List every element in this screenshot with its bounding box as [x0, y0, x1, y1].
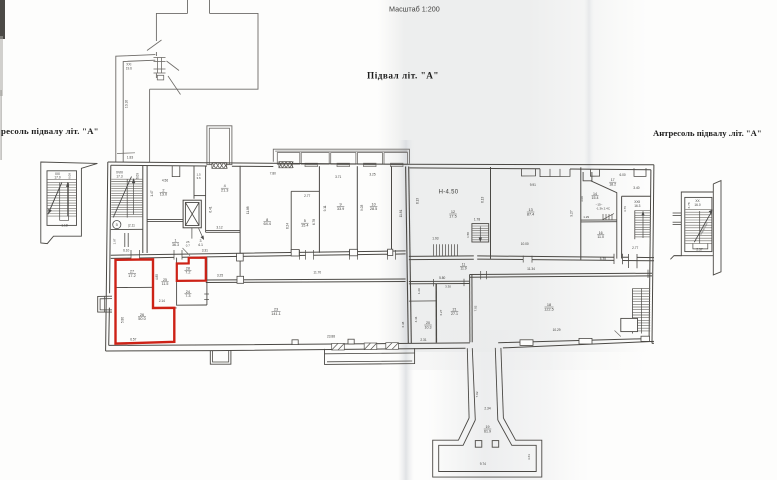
svg-text:7.2: 7.2 [185, 271, 190, 275]
svg-text:4.44: 4.44 [414, 316, 418, 322]
svg-text:5.80: 5.80 [439, 276, 445, 280]
svg-text:11.34: 11.34 [527, 267, 535, 271]
svg-text:15.4: 15.4 [592, 196, 599, 200]
svg-text:2.34: 2.34 [484, 407, 490, 411]
svg-text:-1.3h 2.4С: -1.3h 2.4С [596, 207, 611, 211]
svg-text:6.09: 6.09 [67, 173, 71, 179]
svg-text:5.80: 5.80 [120, 317, 124, 323]
svg-text:3.40: 3.40 [633, 186, 639, 190]
svg-text:1.93: 1.93 [432, 237, 438, 241]
svg-text:1.47: 1.47 [150, 190, 154, 196]
svg-text:6.78: 6.78 [687, 202, 691, 208]
svg-text:27.1: 27.1 [451, 312, 458, 316]
svg-text:1.78: 1.78 [474, 218, 480, 222]
svg-text:33.9: 33.9 [337, 207, 344, 211]
svg-text:7.02: 7.02 [474, 305, 478, 311]
svg-text:2.37: 2.37 [696, 247, 702, 251]
svg-text:10.29: 10.29 [553, 328, 561, 332]
svg-text:1.9Г: 1.9Г [112, 238, 116, 244]
svg-text:141.1: 141.1 [271, 312, 281, 316]
svg-text:2.77: 2.77 [632, 246, 638, 250]
svg-text:7.3: 7.3 [185, 294, 190, 298]
svg-text:10.3: 10.3 [425, 325, 432, 329]
svg-text:3.12: 3.12 [216, 225, 222, 229]
svg-text:Масштаб 1:200: Масштаб 1:200 [389, 5, 440, 14]
svg-text:19.6: 19.6 [126, 66, 132, 70]
svg-text:3.31: 3.31 [202, 248, 208, 252]
svg-text:8.13: 8.13 [415, 198, 419, 204]
svg-text:6.35: 6.35 [600, 257, 606, 261]
svg-text:17.5: 17.5 [449, 214, 456, 218]
svg-text:2.77: 2.77 [304, 194, 310, 198]
svg-text:64.4: 64.4 [264, 222, 271, 226]
svg-text:1.29: 1.29 [417, 288, 421, 294]
svg-text:15.4: 15.4 [301, 224, 308, 228]
svg-text:122.5: 122.5 [544, 307, 554, 311]
svg-text:9.27: 9.27 [569, 210, 573, 216]
svg-text:21.3: 21.3 [221, 189, 228, 193]
svg-text:6.57: 6.57 [130, 337, 136, 341]
svg-text:6.10: 6.10 [123, 249, 129, 253]
svg-text:6.00: 6.00 [619, 173, 625, 177]
svg-text:11.81: 11.81 [399, 209, 403, 217]
svg-text:4.56: 4.56 [162, 179, 168, 183]
svg-text:9.74: 9.74 [480, 462, 486, 466]
svg-text:3.71: 3.71 [335, 175, 341, 179]
svg-text:3.61: 3.61 [527, 454, 531, 460]
svg-text:1.58: 1.58 [466, 232, 470, 238]
svg-text:1.18: 1.18 [61, 224, 67, 228]
svg-text:Н-4.50: Н-4.50 [439, 189, 459, 195]
svg-text:Підвал літ. "А": Підвал літ. "А" [367, 71, 439, 81]
svg-text:|2.11: |2.11 [128, 224, 135, 228]
svg-text:3.25: 3.25 [369, 172, 375, 176]
svg-text:16.0: 16.0 [694, 203, 700, 207]
svg-text:9.03: 9.03 [360, 204, 364, 210]
svg-text:28.5: 28.5 [370, 207, 377, 211]
svg-text:8.24: 8.24 [286, 223, 290, 229]
svg-text:6.09: 6.09 [135, 173, 139, 179]
svg-text:3.76: 3.76 [623, 206, 627, 212]
svg-text:17.0: 17.0 [54, 176, 60, 180]
svg-text:6.38: 6.38 [401, 321, 405, 327]
svg-text:6.13: 6.13 [481, 196, 485, 202]
svg-text:3.00: 3.00 [580, 196, 584, 202]
svg-text:13.0: 13.0 [160, 193, 167, 197]
svg-text:3.25: 3.25 [217, 274, 223, 278]
svg-text:7.02: 7.02 [475, 391, 479, 397]
svg-text:1.83: 1.83 [127, 155, 134, 159]
svg-text:87.4: 87.4 [527, 212, 534, 216]
svg-text:9.11: 9.11 [323, 205, 327, 211]
svg-text:6.27: 6.27 [439, 309, 443, 315]
svg-text:18.2: 18.2 [609, 183, 616, 187]
svg-text:1.29: 1.29 [583, 215, 589, 219]
svg-text:ресоль підвалу літ. "А": ресоль підвалу літ. "А" [1, 126, 99, 136]
svg-text:2.14: 2.14 [159, 299, 165, 303]
svg-text:16.3: 16.3 [634, 204, 640, 208]
svg-text:3.6: 3.6 [197, 176, 202, 180]
svg-text:17.3: 17.3 [116, 174, 122, 178]
svg-text:61.9: 61.9 [484, 429, 491, 433]
svg-text:36.3: 36.3 [172, 243, 179, 247]
svg-text:23.88: 23.88 [327, 335, 335, 339]
svg-text:11.9: 11.9 [460, 267, 466, 271]
svg-text:0.7: 0.7 [186, 244, 190, 248]
svg-text:7.80: 7.80 [270, 172, 276, 176]
svg-text:10.16: 10.16 [125, 100, 129, 108]
svg-text:10.00: 10.00 [521, 242, 529, 246]
svg-text:6.78: 6.78 [312, 219, 316, 225]
svg-text:11.88: 11.88 [246, 206, 250, 214]
svg-text:3.30: 3.30 [445, 284, 451, 288]
svg-text:6.41: 6.41 [208, 206, 212, 212]
svg-text:50.0: 50.0 [138, 317, 145, 321]
svg-text:11.5: 11.5 [162, 282, 169, 286]
svg-text:Антресоль підвалу .літ. "А": Антресоль підвалу .літ. "А" [653, 128, 762, 138]
svg-text:2.31: 2.31 [420, 338, 426, 342]
svg-text:17.2: 17.2 [128, 274, 135, 278]
svg-text:9.91: 9.91 [530, 183, 536, 187]
svg-text:11.70: 11.70 [313, 271, 321, 275]
svg-text:4.1: 4.1 [198, 243, 203, 247]
svg-text:4.85: 4.85 [155, 274, 159, 280]
svg-text:11.0: 11.0 [597, 235, 604, 239]
